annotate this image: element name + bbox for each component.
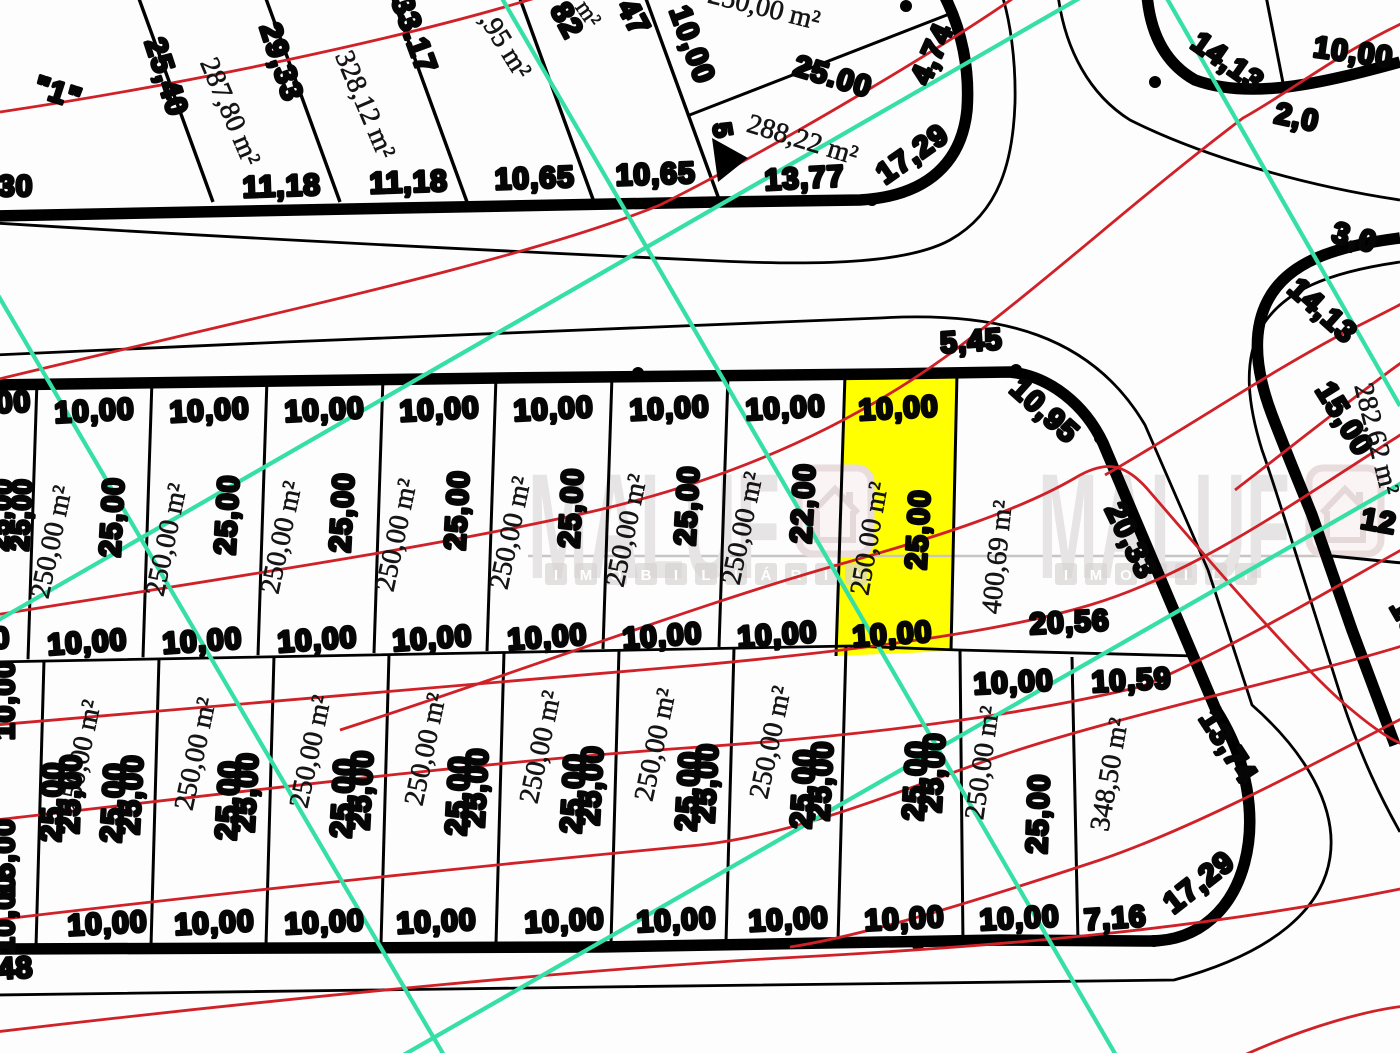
svg-text:10,00: 10,00 [67, 905, 149, 942]
svg-text:10,00: 10,00 [621, 617, 703, 656]
svg-text:10,00: 10,00 [276, 621, 358, 660]
svg-text:25,00: 25,00 [343, 749, 380, 831]
svg-text:10,00: 10,00 [54, 393, 136, 430]
svg-text:25,00: 25,00 [113, 754, 150, 836]
svg-text:I: I [1184, 567, 1188, 584]
svg-text:25,00: 25,00 [209, 474, 246, 556]
svg-text:10,00: 10,00 [0, 660, 21, 740]
svg-text:25,00: 25,00 [915, 732, 952, 814]
svg-text:10,00: 10,00 [506, 618, 588, 657]
svg-text:25,00: 25,00 [324, 472, 361, 554]
svg-text:10,00: 10,00 [979, 900, 1061, 937]
svg-text:25,00: 25,00 [688, 742, 725, 824]
svg-text:10,65: 10,65 [615, 157, 696, 193]
svg-text:11,18: 11,18 [369, 165, 449, 201]
svg-text:10,00: 10,00 [858, 390, 940, 427]
svg-text:25,00: 25,00 [573, 744, 610, 826]
svg-text:25,00: 25,00 [900, 489, 937, 571]
svg-text:7,16: 7,16 [1083, 900, 1148, 937]
svg-text:25,00: 25,00 [439, 469, 476, 551]
svg-text:25,00: 25,00 [228, 751, 265, 833]
svg-text:10,00: 10,00 [174, 905, 256, 942]
svg-text:10,00: 10,00 [169, 392, 251, 429]
svg-text:10,00: 10,00 [396, 903, 478, 940]
svg-text:L: L [701, 567, 710, 584]
svg-text:00: 00 [0, 385, 32, 420]
svg-text:0: 0 [0, 622, 11, 656]
svg-text:10,00: 10,00 [399, 391, 481, 428]
svg-text:25,00: 25,00 [53, 753, 89, 834]
svg-text:10,00: 10,00 [0, 874, 21, 954]
svg-text:I: I [1064, 567, 1068, 584]
svg-text:10,00: 10,00 [864, 901, 946, 938]
svg-text:25,00: 25,00 [803, 740, 840, 822]
svg-text:25,00: 25,00 [1021, 773, 1057, 854]
svg-text:10,00: 10,00 [284, 392, 366, 429]
svg-text:B: B [641, 567, 652, 584]
svg-text:10,00: 10,00 [161, 622, 243, 661]
svg-text:13,77: 13,77 [764, 160, 846, 197]
svg-text:10,00: 10,00 [391, 620, 473, 659]
svg-text:10,59: 10,59 [1091, 662, 1173, 699]
svg-text:10,00: 10,00 [745, 390, 827, 427]
svg-text:10,00: 10,00 [851, 615, 933, 654]
svg-text:10,00: 10,00 [736, 616, 818, 655]
svg-text:12: 12 [1358, 502, 1399, 541]
svg-text:25,00: 25,00 [553, 467, 590, 549]
svg-text:10,00: 10,00 [524, 903, 606, 940]
svg-text:22,00: 22,00 [785, 462, 822, 544]
svg-text:10,00: 10,00 [46, 623, 128, 662]
svg-text:25,00: 25,00 [94, 476, 131, 558]
svg-text:M: M [580, 567, 593, 584]
svg-text:10,00: 10,00 [973, 664, 1055, 701]
svg-text:20,56: 20,56 [1029, 604, 1111, 641]
svg-text:M: M [1090, 567, 1103, 584]
svg-text:11,18: 11,18 [242, 169, 322, 205]
svg-text:48: 48 [0, 951, 34, 986]
svg-text:25,00: 25,00 [669, 465, 706, 547]
svg-text:10,00: 10,00 [629, 390, 711, 427]
svg-text:5,45: 5,45 [939, 323, 1004, 360]
svg-text:10,00: 10,00 [636, 902, 718, 939]
svg-text:30: 30 [0, 170, 33, 203]
svg-text:I: I [554, 567, 558, 584]
svg-text:Á: Á [761, 567, 772, 584]
svg-text:10,00: 10,00 [513, 391, 595, 428]
svg-text:25,00: 25,00 [4, 478, 38, 552]
svg-text:10,00: 10,00 [284, 904, 366, 941]
svg-text:10,65: 10,65 [494, 161, 575, 197]
svg-text:I: I [674, 567, 678, 584]
svg-text:10,00: 10,00 [748, 901, 830, 938]
svg-text:25,00: 25,00 [458, 747, 495, 829]
